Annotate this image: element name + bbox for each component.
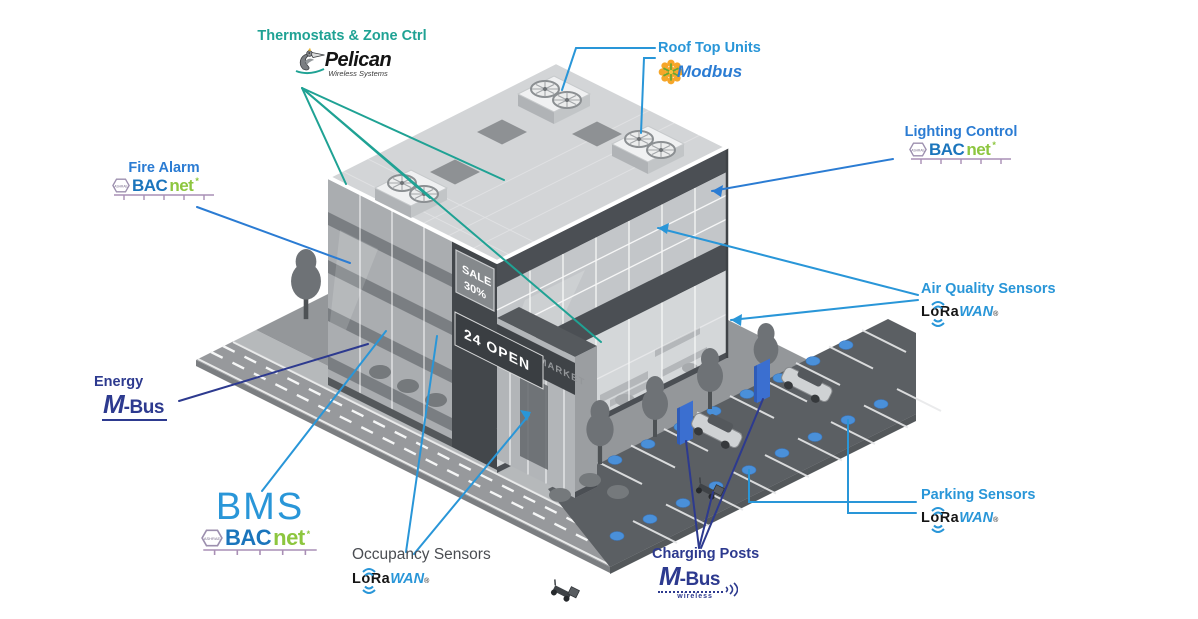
bacnet-logo: ASHRAE BACnet* <box>112 177 216 202</box>
bacnet-network-line-icon <box>201 549 319 557</box>
bms-label: BMS <box>216 488 304 526</box>
air-quality-label: Air Quality Sensors <box>921 281 1056 297</box>
svg-text:ASHRAE: ASHRAE <box>911 148 925 152</box>
bacnet-logo: ASHRAE BACnet* <box>909 141 1013 166</box>
ashrae-hexagon-icon: ASHRAE <box>112 178 130 193</box>
occupancy-label: Occupancy Sensors <box>352 546 491 564</box>
modbus-logo: Modbus <box>658 59 761 85</box>
svg-text:ASHRAE: ASHRAE <box>114 184 128 188</box>
ashrae-hexagon-icon: ASHRAE <box>201 529 223 547</box>
charging-posts-label: Charging Posts <box>652 546 759 562</box>
lorawan-logo: LoRaWAN® <box>921 511 998 526</box>
parking-label: Parking Sensors <box>921 487 1035 503</box>
annotation-energy: Energy M-Bus <box>94 374 167 421</box>
lighting-control-label: Lighting Control <box>905 124 1018 140</box>
bacnet-network-line-icon <box>112 194 216 202</box>
annotation-bms: BMS ASHRAE BACnet* <box>200 488 320 557</box>
annotation-rooftop-units: Roof Top Units Modbus <box>658 40 761 85</box>
rooftop-units-label: Roof Top Units <box>658 40 761 56</box>
annotation-charging-posts: Charging Posts M-Bus wireless <box>652 546 759 600</box>
mbus-tagline: wireless <box>677 593 713 600</box>
annotation-occupancy: Occupancy Sensors LoRaWAN® <box>352 546 491 587</box>
scooter <box>548 579 579 605</box>
lorawan-logo: LoRaWAN® <box>921 305 998 320</box>
annotation-fire-alarm: Fire Alarm ASHRAE BACnet* <box>104 160 224 202</box>
wireless-waves-icon <box>724 582 738 598</box>
bush <box>579 473 601 487</box>
bacnet-network-line-icon <box>909 158 1013 166</box>
ashrae-hexagon-icon: ASHRAE <box>909 142 927 157</box>
bush <box>607 485 629 499</box>
annotation-thermostats: Thermostats & Zone Ctrl Pelican Wireless… <box>247 28 437 77</box>
fire-alarm-line <box>197 207 350 263</box>
svg-text:ASHRAE: ASHRAE <box>204 536 221 541</box>
mbus-logo: M-Bus <box>102 391 167 421</box>
pelican-bird-icon <box>293 47 327 77</box>
annotation-air-quality: Air Quality Sensors LoRaWAN® <box>921 281 1056 320</box>
pelican-logo: Pelican Wireless Systems <box>293 47 392 77</box>
mbus-wireless-logo: M-Bus wireless <box>658 563 723 600</box>
thermostats-label: Thermostats & Zone Ctrl <box>257 28 426 44</box>
lighting-line <box>712 159 893 191</box>
modbus-name: Modbus <box>677 62 742 82</box>
smart-building-diagram: SUPERMARKET SALE 30% 24 OPEN <box>0 0 1198 619</box>
bacnet-logo: ASHRAE BACnet* <box>201 527 319 557</box>
annotation-parking: Parking Sensors LoRaWAN® <box>921 487 1035 526</box>
fire-alarm-label: Fire Alarm <box>128 160 199 176</box>
pelican-tagline: Wireless Systems <box>328 70 388 78</box>
annotation-lighting-control: Lighting Control ASHRAE BACnet* <box>897 124 1025 166</box>
bush <box>397 379 419 393</box>
bush <box>369 365 391 379</box>
air-quality-line <box>731 300 918 320</box>
pelican-name: Pelican <box>325 50 392 70</box>
lorawan-logo: LoRaWAN® <box>352 572 429 587</box>
bush <box>549 488 571 502</box>
energ-label: Energy <box>94 374 167 390</box>
